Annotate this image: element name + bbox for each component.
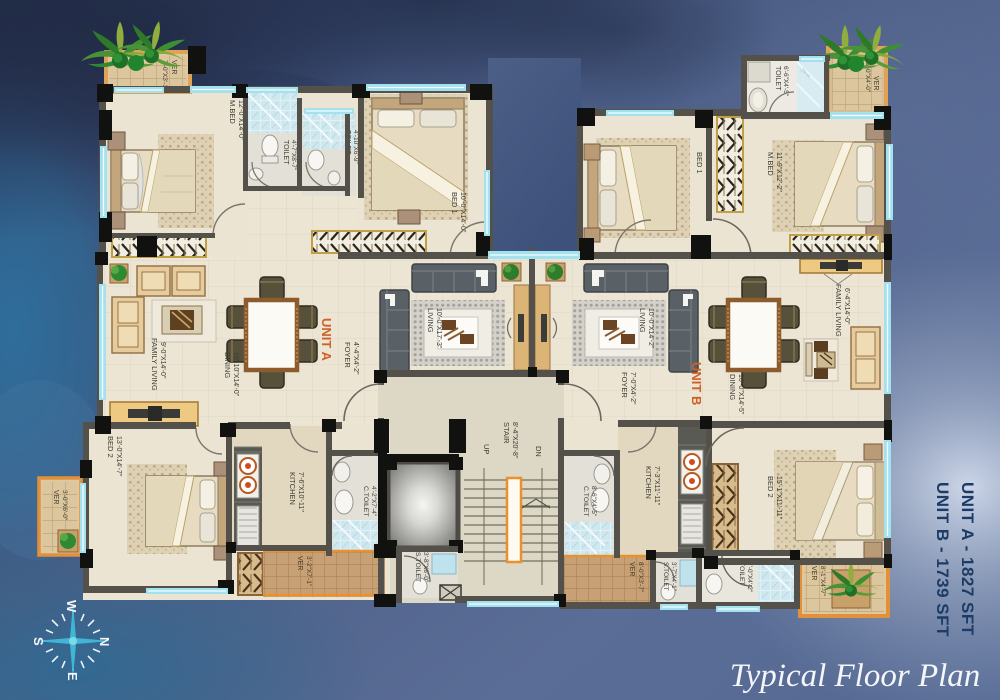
svg-text:7'-0"X4'-2": 7'-0"X4'-2" <box>629 372 636 405</box>
svg-text:TOILET: TOILET <box>282 140 289 165</box>
svg-text:4'-2"X7'-4": 4'-2"X7'-4" <box>370 486 377 517</box>
svg-text:15'-1"X11'-11": 15'-1"X11'-11" <box>775 476 782 520</box>
svg-text:10'-0"X14'-2": 10'-0"X14'-2" <box>647 308 654 349</box>
svg-text:LIVING: LIVING <box>426 308 435 333</box>
svg-text:12'-0"X14'-0": 12'-0"X14'-0" <box>237 100 244 141</box>
svg-text:S: S <box>31 637 46 646</box>
svg-text:C.TOILET: C.TOILET <box>362 486 369 516</box>
svg-text:LIVING: LIVING <box>638 308 647 333</box>
svg-text:M.BED: M.BED <box>766 152 775 176</box>
svg-text:S.TOILET: S.TOILET <box>414 552 421 582</box>
svg-text:VER: VER <box>52 490 59 504</box>
svg-text:3'-0"X6'-0": 3'-0"X6'-0" <box>61 490 68 521</box>
svg-text:C.TOILET: C.TOILET <box>582 486 589 516</box>
svg-text:8'-0"X3'-7": 8'-0"X3'-7" <box>637 562 644 593</box>
svg-text:VER: VER <box>296 556 303 570</box>
svg-text:4'-10"X6'-9": 4'-10"X6'-9" <box>352 130 359 165</box>
svg-text:M.BED: M.BED <box>228 100 237 124</box>
svg-text:9'-0"X14'-0": 9'-0"X14'-0" <box>159 342 166 379</box>
svg-text:UNIT A: UNIT A <box>319 318 334 361</box>
svg-text:TOILET: TOILET <box>774 66 781 91</box>
svg-text:TOILET: TOILET <box>738 562 745 586</box>
svg-text:10'-0"X14'-5": 10'-0"X14'-5" <box>737 374 744 415</box>
svg-text:7'-6"X10'-11": 7'-6"X10'-11" <box>297 472 304 512</box>
svg-text:FAMILY LIVING: FAMILY LIVING <box>834 284 843 337</box>
svg-text:Typical Floor Plan: Typical Floor Plan <box>730 658 981 694</box>
svg-text:KITCHEN: KITCHEN <box>288 472 297 505</box>
svg-text:VER: VER <box>872 76 879 90</box>
svg-text:FAMILY LIVING: FAMILY LIVING <box>150 338 159 391</box>
svg-text:FOYER: FOYER <box>343 342 352 368</box>
svg-text:7'-3"X11'-11": 7'-3"X11'-11" <box>653 466 660 506</box>
svg-text:10'-0"X14'-0": 10'-0"X14'-0" <box>459 192 466 233</box>
svg-text:VER: VER <box>810 566 817 580</box>
svg-text:KITCHEN: KITCHEN <box>644 466 653 499</box>
svg-text:VER: VER <box>170 60 177 74</box>
svg-text:3'-8"X6'-0": 3'-8"X6'-0" <box>422 552 429 583</box>
svg-text:4'-4"X4'-2": 4'-4"X4'-2" <box>352 342 359 375</box>
svg-text:BED 2: BED 2 <box>106 436 115 458</box>
svg-text:N: N <box>97 637 112 646</box>
svg-text:8'-4"X20'-8": 8'-4"X20'-8" <box>511 422 518 459</box>
svg-text:3'-2"X7'-1": 3'-2"X7'-1" <box>305 556 312 587</box>
svg-text:UNIT A - 1827 SFT: UNIT A - 1827 SFT <box>958 482 977 636</box>
svg-text:11'-9"X12'-2": 11'-9"X12'-2" <box>775 152 782 192</box>
svg-text:10'-10"X14'-0": 10'-10"X14'-0" <box>232 352 239 397</box>
svg-text:10'-0"X17'-3": 10'-0"X17'-3" <box>435 308 442 349</box>
svg-text:E: E <box>65 672 80 681</box>
svg-text:UNIT B - 1739 SFT: UNIT B - 1739 SFT <box>933 482 952 637</box>
svg-text:13'-0"X14'-7": 13'-0"X14'-7" <box>115 436 122 477</box>
svg-text:6'-4"X14'-0": 6'-4"X14'-0" <box>843 288 850 325</box>
svg-text:DN: DN <box>534 446 543 457</box>
svg-text:STAIR: STAIR <box>502 422 511 444</box>
svg-text:FOYER: FOYER <box>620 372 629 398</box>
svg-text:BED 1: BED 1 <box>695 152 704 174</box>
svg-text:W: W <box>64 600 79 613</box>
svg-text:VER: VER <box>628 562 635 576</box>
svg-text:BED 1: BED 1 <box>450 192 459 214</box>
svg-text:DINING: DINING <box>223 352 232 378</box>
svg-text:BED 2: BED 2 <box>766 476 775 498</box>
svg-text:4'-7"X8'-7": 4'-7"X8'-7" <box>290 140 297 171</box>
svg-text:UP: UP <box>482 444 491 454</box>
svg-text:8'-1"X4'-7": 8'-1"X4'-7" <box>819 566 826 597</box>
svg-text:DINING: DINING <box>728 374 737 400</box>
svg-text:8'-6"X4'-5": 8'-6"X4'-5" <box>590 486 597 517</box>
svg-text:7'-0"X4'-2": 7'-0"X4'-2" <box>746 562 753 593</box>
svg-text:UNIT B: UNIT B <box>689 362 704 405</box>
